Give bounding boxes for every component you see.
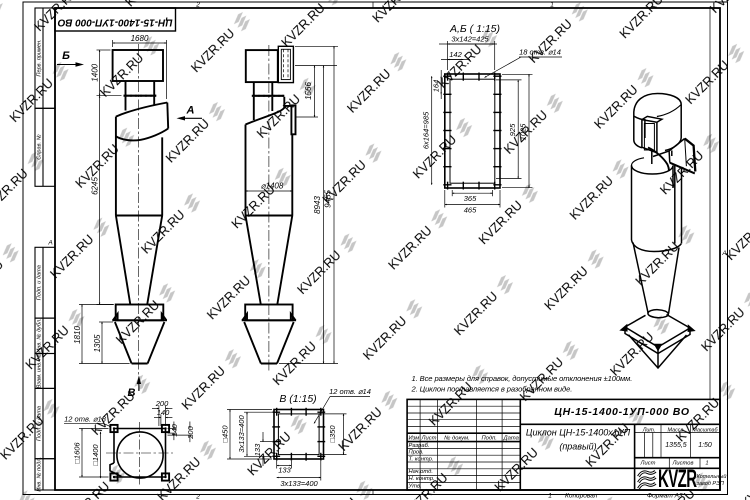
svg-text:1. Все размеры для справок, до: 1. Все размеры для справок, допустимые о… [412, 374, 633, 383]
svg-text:3х142=425: 3х142=425 [451, 35, 489, 44]
svg-text:Лист: Лист [421, 436, 437, 442]
svg-text:Масштаб: Масштаб [692, 428, 718, 434]
svg-text:В: В [128, 387, 136, 399]
svg-text:Подп. и дата: Подп. и дата [37, 406, 43, 441]
svg-text:Котельный: Котельный [697, 473, 727, 480]
svg-text:Перв. примен.: Перв. примен. [37, 39, 43, 76]
svg-text:1566: 1566 [304, 82, 313, 100]
svg-text:Разраб.: Разраб. [409, 443, 430, 449]
svg-text:200: 200 [155, 399, 169, 408]
svg-text:Копировал: Копировал [565, 493, 598, 500]
svg-text:6245: 6245 [90, 177, 99, 195]
svg-text:Н. контр.: Н. контр. [409, 476, 435, 482]
svg-text:365: 365 [464, 194, 477, 203]
svg-text:□350: □350 [328, 425, 337, 443]
svg-text:□1606: □1606 [73, 442, 82, 464]
svg-text:Масса: Масса [668, 428, 684, 434]
svg-text:6х164=985: 6х164=985 [422, 111, 431, 149]
svg-text:142: 142 [449, 50, 462, 59]
svg-text:1025: 1025 [519, 123, 528, 141]
svg-text:2: 2 [195, 2, 200, 9]
svg-text:⌀1408: ⌀1408 [261, 182, 284, 191]
svg-text:Т. контр.: Т. контр. [409, 456, 434, 462]
svg-text:Циклон ЦН-15-1400х1УП: Циклон ЦН-15-1400х1УП [526, 428, 631, 438]
svg-text:1305: 1305 [93, 334, 102, 352]
svg-text:А: А [186, 105, 195, 117]
svg-text:200: 200 [186, 425, 195, 439]
svg-text:1355,5: 1355,5 [665, 442, 687, 449]
svg-text:Лист: Лист [640, 460, 656, 466]
svg-text:9455: 9455 [324, 190, 333, 208]
svg-text:KVZR: KVZR [658, 465, 697, 493]
svg-text:Пров.: Пров. [409, 450, 424, 456]
svg-text:2. Циклон поставляется в разоб: 2. Циклон поставляется в разобранном вид… [411, 385, 573, 394]
svg-text:140: 140 [157, 408, 170, 417]
svg-text:1: 1 [705, 460, 708, 466]
svg-text:Инв. № дубл.: Инв. № дубл. [37, 318, 43, 352]
svg-text:1680: 1680 [131, 34, 149, 43]
svg-text:Б: Б [62, 50, 70, 62]
svg-text:1400: 1400 [90, 63, 99, 81]
svg-text:А,Б ( 1:15): А,Б ( 1:15) [449, 23, 500, 35]
svg-text:А: А [47, 240, 52, 247]
svg-text:18 отв. ⌀14: 18 отв. ⌀14 [519, 48, 561, 57]
svg-text:465: 465 [464, 206, 477, 215]
svg-text:(правый): (правый) [559, 442, 596, 452]
svg-text:Лит.: Лит. [642, 428, 656, 434]
svg-text:1:50: 1:50 [698, 442, 712, 449]
svg-text:А: А [721, 250, 726, 257]
svg-text:Взам. инв. №: Взам. инв. № [37, 354, 43, 389]
svg-text:Дата: Дата [503, 436, 520, 442]
svg-text:Нач.отд.: Нач.отд. [409, 469, 433, 475]
svg-text:№ докум.: № докум. [444, 436, 470, 442]
svg-text:164: 164 [431, 80, 440, 93]
svg-text:Подп.: Подп. [481, 436, 496, 442]
svg-text:□1400: □1400 [91, 444, 100, 466]
svg-text:1: 1 [548, 493, 552, 500]
svg-text:завод РЭП: завод РЭП [696, 481, 724, 487]
svg-text:Справ. №: Справ. № [37, 134, 43, 159]
svg-text:12 отв. ⌀14: 12 отв. ⌀14 [329, 387, 371, 396]
svg-text:1: 1 [550, 2, 554, 9]
svg-text:Подп. и дата: Подп. и дата [37, 265, 43, 300]
svg-text:Инв. № подл.: Инв. № подл. [37, 457, 43, 492]
svg-text:8943: 8943 [313, 196, 322, 214]
svg-text:2: 2 [195, 494, 200, 500]
svg-text:925: 925 [508, 123, 517, 136]
svg-text:ЦН-15-1400-1УП-000 ВО: ЦН-15-1400-1УП-000 ВО [554, 406, 689, 418]
svg-text:3х133=400: 3х133=400 [237, 415, 246, 453]
svg-text:□450: □450 [220, 425, 229, 443]
svg-text:Изм: Изм [409, 436, 420, 442]
svg-text:Формат А3: Формат А3 [647, 493, 683, 500]
svg-text:Утв.: Утв. [408, 484, 422, 490]
svg-text:12 отв. ⌀18: 12 отв. ⌀18 [64, 415, 107, 424]
svg-text:3х133=400: 3х133=400 [280, 479, 318, 488]
svg-text:В (1:15): В (1:15) [279, 393, 316, 405]
svg-text:133: 133 [253, 443, 262, 456]
svg-text:133: 133 [278, 466, 291, 475]
svg-text:ЦН-15-1400-1УП-000 ВО: ЦН-15-1400-1УП-000 ВО [58, 17, 173, 28]
svg-text:1810: 1810 [73, 326, 82, 344]
